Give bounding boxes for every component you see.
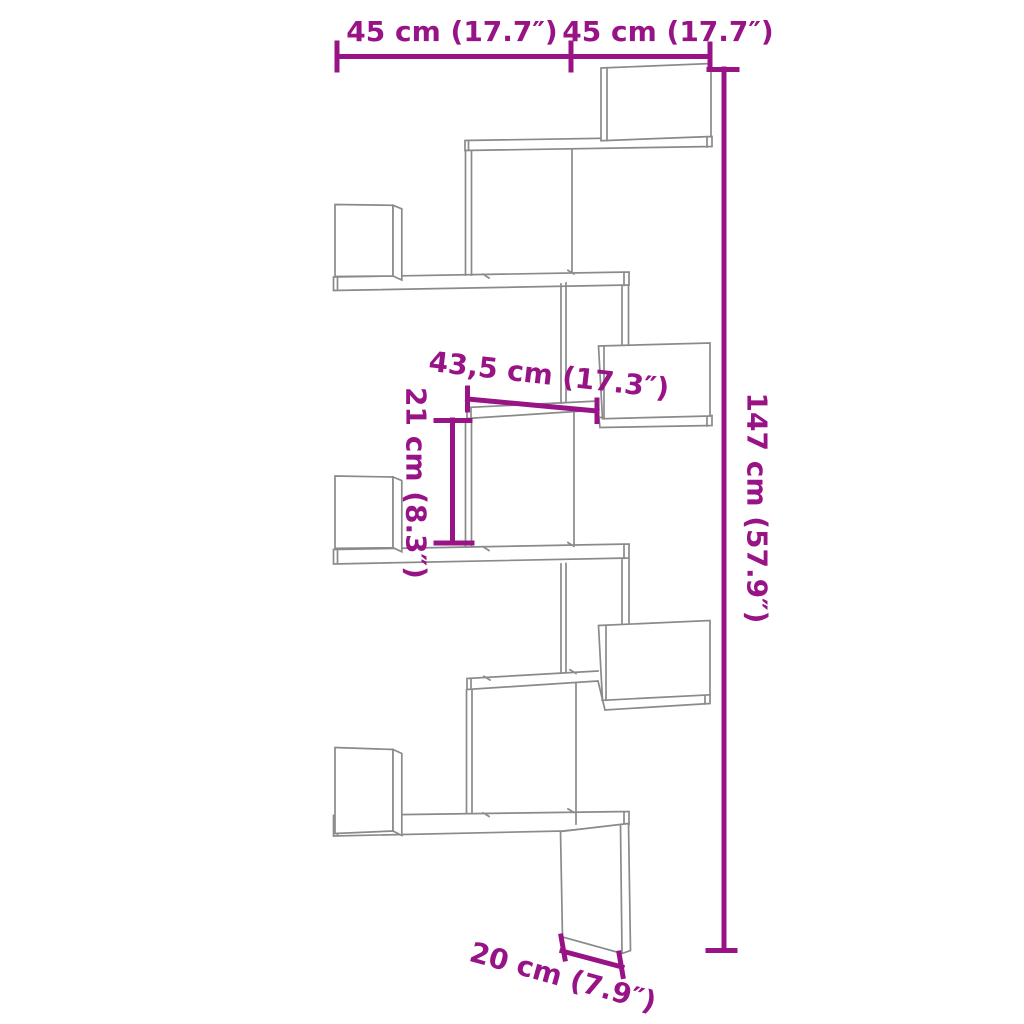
dim-shelf-gap-line [436, 420, 472, 543]
dim-total-height-line [708, 69, 737, 951]
riser-1 [601, 64, 711, 141]
label-shelf-gap: 21 cm (8.3″) [400, 387, 433, 579]
label-top-right-width: 45 cm (17.7″) [562, 15, 773, 48]
product-dimension-diagram: 45 cm (17.7″) 45 cm (17.7″) 147 cm (57.9… [0, 0, 1024, 1024]
label-total-height: 147 cm (57.9″) [741, 393, 774, 624]
dimension-labels: 45 cm (17.7″) 45 cm (17.7″) 147 cm (57.9… [346, 15, 773, 1019]
corner-wall-shelf-drawing: 45 cm (17.7″) 45 cm (17.7″) 147 cm (57.9… [0, 0, 1024, 1024]
riser-5 [599, 621, 711, 701]
riser-2 [335, 205, 402, 281]
corner-supports [466, 150, 630, 824]
shelf-line-art [334, 64, 713, 954]
riser-boards [335, 64, 711, 954]
bottom-panel [561, 824, 631, 954]
riser-6 [335, 748, 402, 836]
label-top-left-width: 45 cm (17.7″) [346, 15, 557, 48]
riser-4 [335, 476, 402, 552]
